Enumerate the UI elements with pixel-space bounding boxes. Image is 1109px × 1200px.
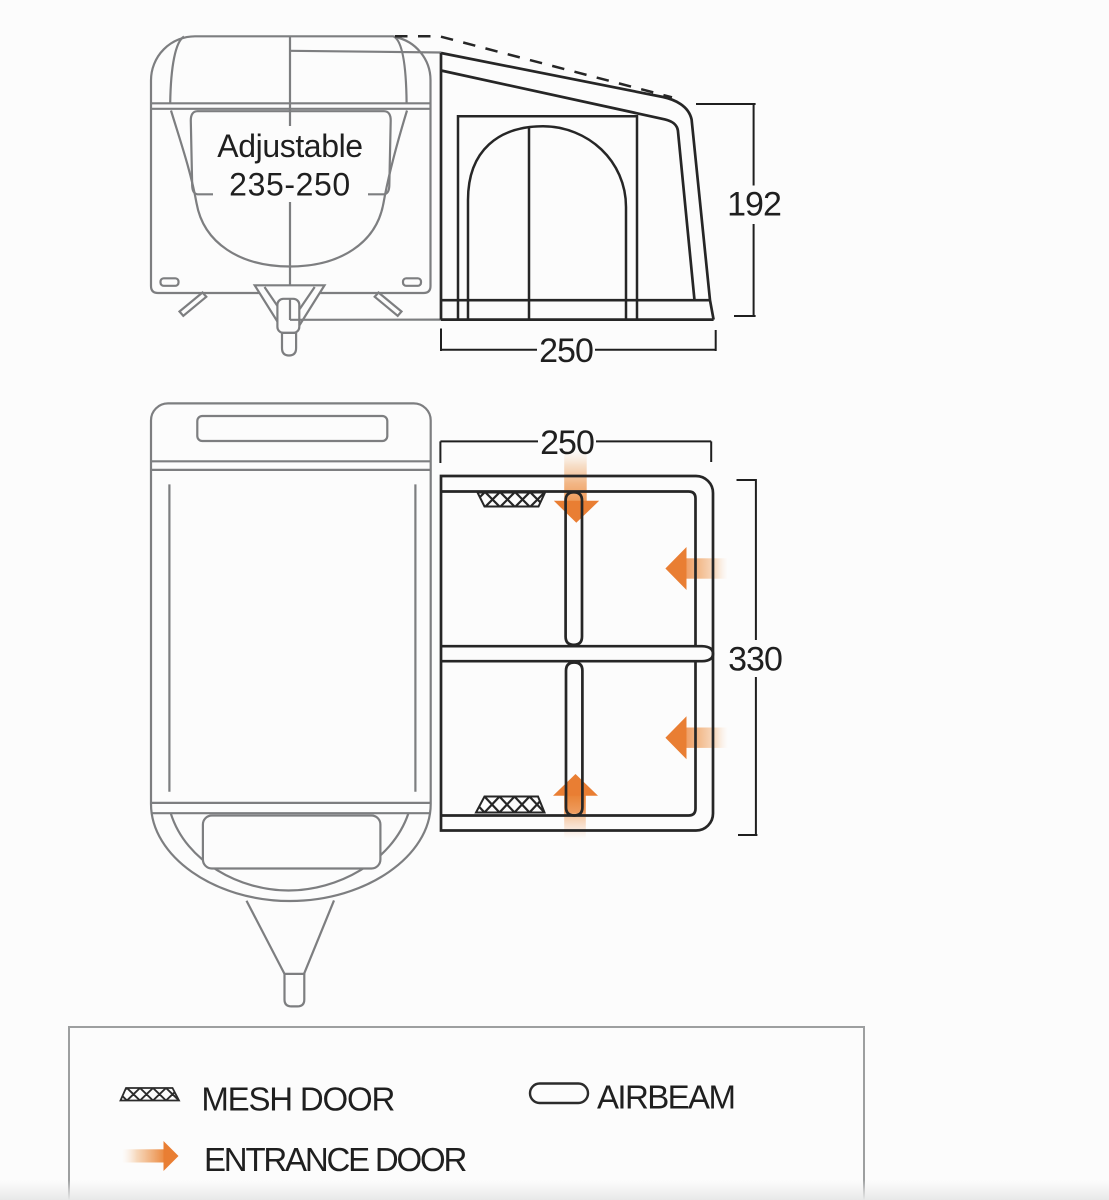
- svg-text:250: 250: [539, 332, 593, 370]
- svg-text:ENTRANCE DOOR: ENTRANCE DOOR: [204, 1141, 466, 1178]
- svg-text:AIRBEAM: AIRBEAM: [597, 1079, 734, 1116]
- svg-text:330: 330: [728, 641, 782, 679]
- svg-text:MESH DOOR: MESH DOOR: [201, 1081, 394, 1118]
- svg-text:235-250: 235-250: [229, 167, 351, 203]
- svg-text:192: 192: [727, 186, 781, 224]
- svg-text:Adjustable: Adjustable: [217, 128, 362, 164]
- svg-text:250: 250: [540, 424, 594, 462]
